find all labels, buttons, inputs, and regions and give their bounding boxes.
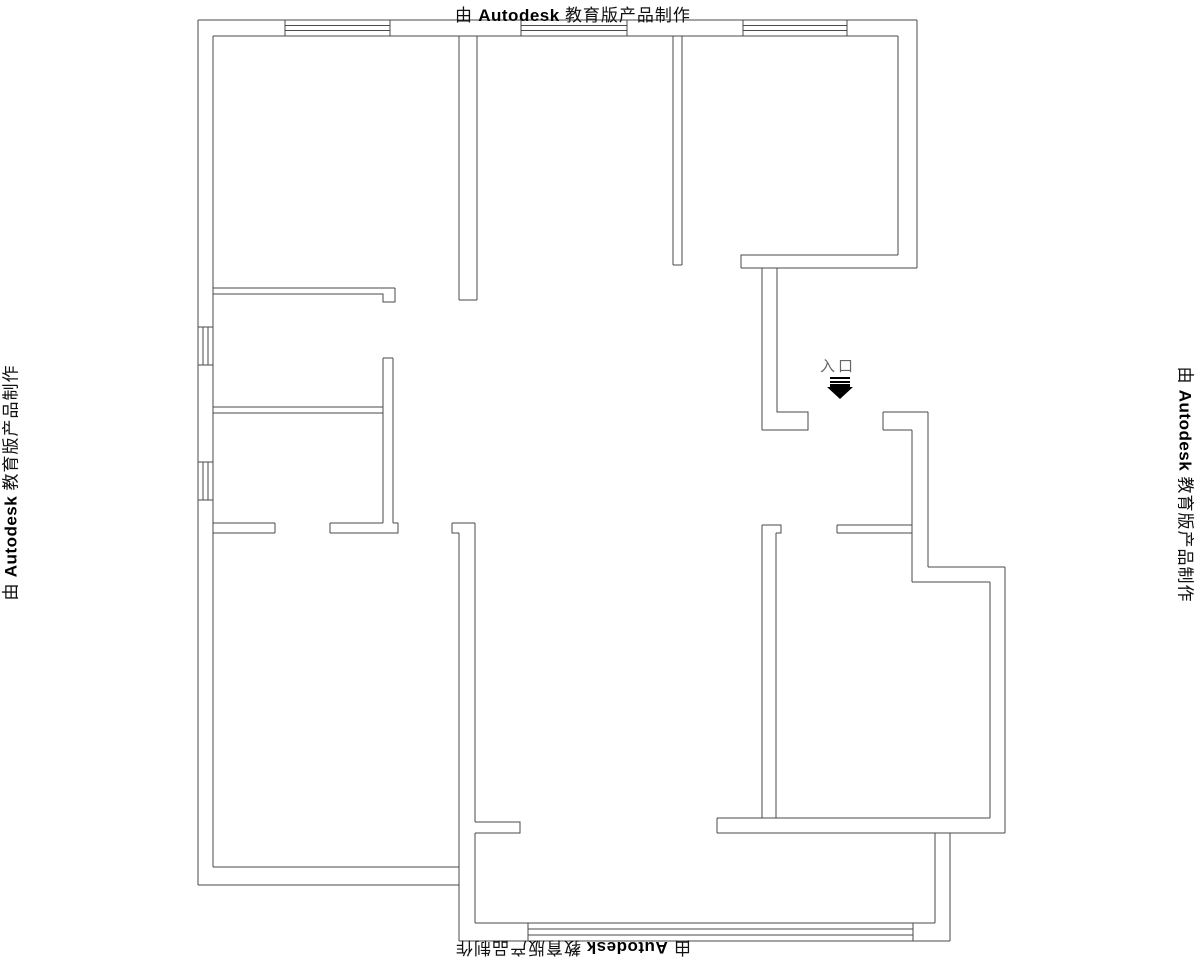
entrance-arrow-bar [830, 381, 850, 383]
floor-plan-canvas: 由 Autodesk 教育版产品制作 由 Autodesk 教育版产品制作 由 … [0, 0, 1200, 960]
watermark-suffix: 教育版产品制作 [565, 6, 691, 25]
watermark-bottom: 由 Autodesk 教育版产品制作 [455, 937, 691, 960]
topright-room-south-wall [741, 255, 917, 268]
watermark-top: 由 Autodesk 教育版产品制作 [455, 1, 691, 26]
bottomleft-room-east-wall [452, 523, 520, 941]
bottomright-room-north-wall [837, 525, 912, 533]
floor-plan-drawing [0, 0, 1200, 960]
bottomleft-room-south-wall [198, 867, 459, 885]
bottomleft-room-north-wall-right [330, 523, 398, 533]
bottomright-room-west-wall [762, 525, 781, 818]
watermark-left: 由 Autodesk 教育版产品制作 [0, 348, 22, 618]
entrance-arrow-triangle [827, 387, 853, 399]
divider-topmiddle-topright [673, 36, 682, 265]
window-left-lower [198, 462, 213, 500]
entry-hall-west-wall [762, 268, 808, 430]
bottomright-room-south-wall [717, 818, 1005, 833]
right-step-wall-horizontal [912, 567, 1005, 582]
entrance-arrow-bar [830, 377, 850, 379]
left-rooms-divider-wall [213, 407, 383, 413]
bottomleft-room-north-wall-left [213, 523, 275, 533]
divider-topleft-topmiddle [459, 36, 477, 300]
right-step-wall-vertical [912, 412, 928, 582]
window-left-upper [198, 327, 213, 365]
watermark-right: 由 Autodesk 教育版产品制作 [1175, 350, 1200, 620]
right-step-wall-top [883, 412, 928, 430]
balcony-east-wall [935, 833, 950, 941]
window-top-right [743, 20, 847, 36]
watermark-brand: Autodesk [478, 6, 559, 25]
window-top-left [285, 20, 390, 36]
watermark-prefix: 由 [455, 6, 473, 25]
entrance-label: 入口 [806, 355, 870, 376]
left-rooms-east-wall [383, 358, 393, 523]
topleft-room-south-wall [213, 288, 395, 302]
entrance-arrow-icon [827, 376, 853, 400]
bottomright-room-east-wall [990, 567, 1005, 833]
